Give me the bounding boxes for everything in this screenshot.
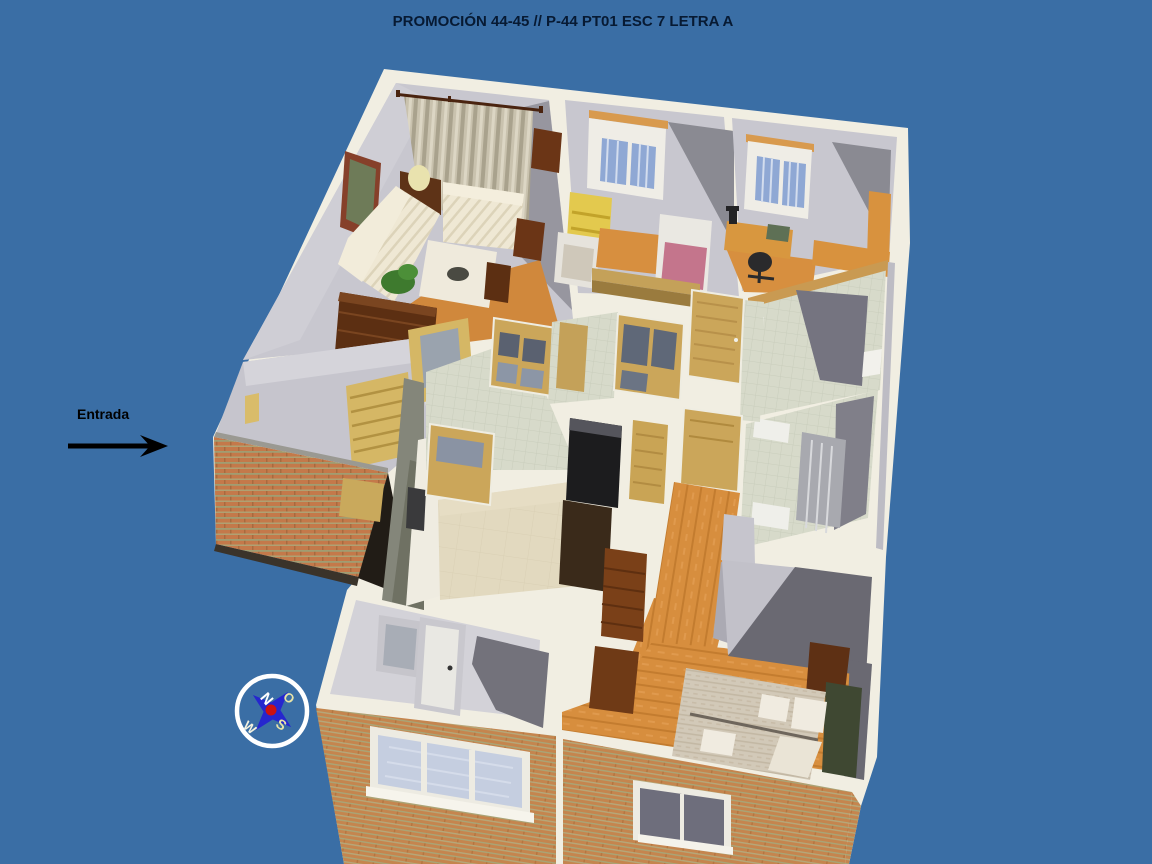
svg-text:Entrada: Entrada [77,406,129,422]
svg-text:PROMOCIÓN 44-45 // P-44 PT01 E: PROMOCIÓN 44-45 // P-44 PT01 ESC 7 LETRA… [393,12,734,30]
